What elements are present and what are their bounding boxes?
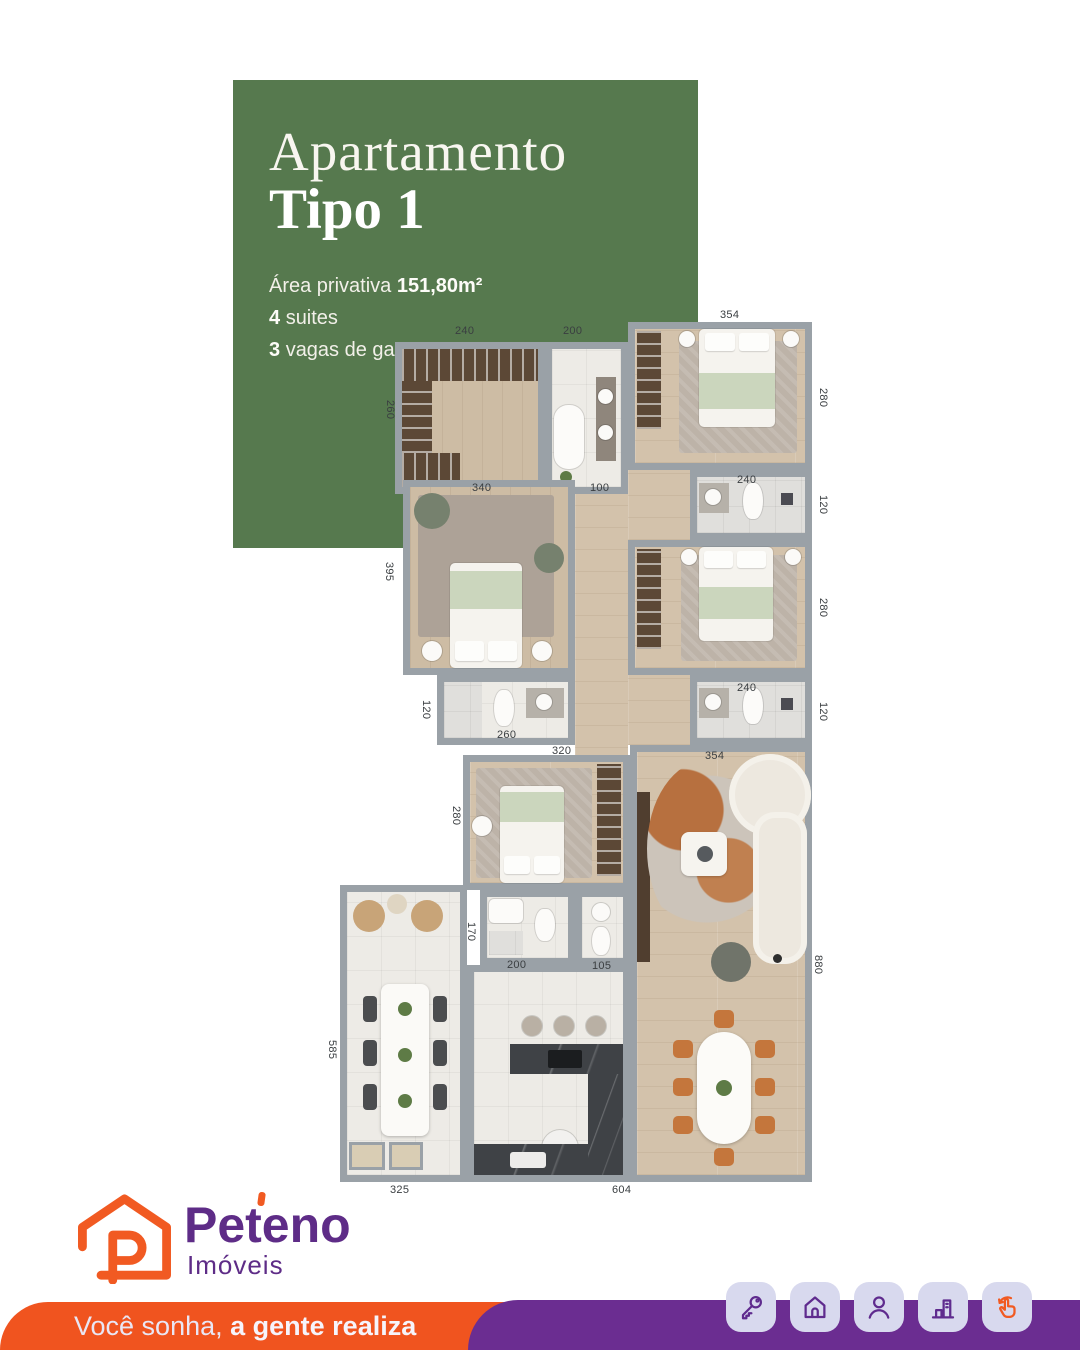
floor-lamp (781, 493, 793, 505)
dining-chair (673, 1040, 693, 1058)
side-table (532, 641, 552, 661)
side-table (422, 641, 442, 661)
sink (598, 425, 613, 440)
sink (536, 694, 552, 710)
footer-tagline: Você sonha, a gente realiza (74, 1311, 416, 1342)
dim-label: 100 (590, 483, 609, 494)
room-suite-2 (628, 540, 812, 675)
room-kitchen (467, 965, 630, 1182)
dim-label: 260 (497, 730, 516, 741)
dim-label: 604 (612, 1185, 631, 1196)
nightstand (679, 331, 695, 347)
entry-hall (628, 470, 690, 540)
dining-chair (755, 1078, 775, 1096)
toilet (535, 909, 555, 941)
bed (699, 329, 775, 427)
plant (716, 1080, 732, 1096)
dim-label: 880 (812, 955, 823, 974)
side-table (387, 894, 407, 914)
key-icon[interactable] (726, 1282, 776, 1332)
bed (450, 563, 522, 668)
toilet (592, 927, 610, 955)
spec-area: Área privativa 151,80m² (269, 270, 567, 302)
pillow (705, 333, 735, 351)
pillow (504, 856, 530, 874)
chair (534, 543, 564, 573)
pillow (739, 333, 769, 351)
room-lavabo (575, 890, 630, 965)
dim-label: 280 (817, 388, 828, 407)
suites-number: 4 (269, 307, 280, 329)
room-living-dining (630, 745, 812, 1182)
shower (444, 682, 482, 738)
bed (699, 547, 773, 641)
chair (363, 996, 377, 1022)
pillow (488, 641, 517, 661)
grill (389, 1142, 423, 1170)
dim-label: 120 (420, 700, 431, 719)
blanket (450, 571, 522, 609)
bathtub (554, 405, 584, 469)
armchair (414, 493, 450, 529)
hallway (575, 480, 628, 770)
dim-label: 240 (737, 475, 756, 486)
toilet (743, 483, 763, 519)
bar-stool (554, 1016, 574, 1036)
tagline-bold: a gente realiza (230, 1311, 416, 1341)
footer-icon-buttons (726, 1282, 1032, 1332)
brand-subtitle: Imóveis (187, 1250, 284, 1281)
dim-label: 395 (383, 562, 394, 581)
room-bathroom-suite4 (480, 890, 575, 965)
nightstand (681, 549, 697, 565)
blanket (699, 587, 773, 619)
dim-label: 240 (737, 683, 756, 694)
vanity-sink (489, 899, 523, 923)
dining-chair (714, 1010, 734, 1028)
floor-lamp (781, 698, 793, 710)
toilet (494, 690, 514, 726)
room-balcony (340, 885, 467, 1182)
brand-logo: Peteno Imóveis (72, 1192, 492, 1287)
plant (398, 1094, 412, 1108)
dim-label: 585 (326, 1040, 337, 1059)
room-walkin-closet (395, 342, 545, 494)
sink (705, 694, 721, 710)
card-title-line2: Tipo 1 (269, 180, 567, 240)
armchair (711, 942, 751, 982)
dim-label: 280 (450, 806, 461, 825)
cooktop (548, 1050, 582, 1068)
home-icon[interactable] (790, 1282, 840, 1332)
area-value: 151,80m² (397, 275, 483, 297)
shower (489, 931, 523, 955)
chair (433, 996, 447, 1022)
dining-chair (755, 1040, 775, 1058)
dining-chair (755, 1116, 775, 1134)
room-suite-4 (463, 755, 630, 890)
wardrobe (402, 381, 432, 453)
wardrobe (402, 349, 538, 381)
chair (363, 1084, 377, 1110)
dim-label: 354 (720, 310, 739, 321)
pillow (455, 641, 484, 661)
garage-number: 3 (269, 339, 280, 361)
tv-sideboard (637, 792, 650, 962)
dim-label: 120 (817, 495, 828, 514)
nightstand (783, 331, 799, 347)
sink (705, 489, 721, 505)
kitchen-sink (510, 1152, 546, 1168)
house-logo-icon (72, 1192, 177, 1284)
dim-label: 170 (465, 922, 476, 941)
plant (398, 1048, 412, 1062)
plant (398, 1002, 412, 1016)
floor-lamp (773, 954, 782, 963)
bed (500, 786, 564, 883)
area-label: Área privativa (269, 275, 391, 297)
sofa (753, 812, 807, 964)
side-table (472, 816, 492, 836)
sink (592, 903, 610, 921)
hallway (628, 675, 690, 745)
closet-shelves (637, 331, 661, 429)
dim-label: 120 (817, 702, 828, 721)
dim-label: 240 (455, 326, 474, 337)
grill (349, 1142, 385, 1170)
dining-chair (714, 1148, 734, 1166)
rattan-chair (353, 900, 385, 932)
kitchen-counter (588, 1074, 623, 1175)
dining-chair (673, 1078, 693, 1096)
pillow (704, 551, 733, 568)
dim-label: 260 (384, 400, 395, 419)
user-icon[interactable] (854, 1282, 904, 1332)
dim-label: 320 (552, 746, 571, 757)
floor-plan: 240 200 354 260 280 340 100 240 120 395 … (320, 305, 835, 1200)
dim-label: 200 (563, 326, 582, 337)
blanket (699, 373, 775, 409)
tagline-regular: Você sonha, (74, 1311, 223, 1341)
chair (433, 1040, 447, 1066)
chair (363, 1040, 377, 1066)
closet-shelves (597, 764, 621, 876)
brand-name: Peteno (184, 1196, 351, 1254)
pillow (534, 856, 560, 874)
blanket (500, 792, 564, 822)
dim-label: 280 (817, 598, 828, 617)
room-suite-3 (403, 480, 575, 675)
rattan-chair (411, 900, 443, 932)
dim-label: 200 (507, 960, 526, 971)
swipe-hand-icon[interactable] (982, 1282, 1032, 1332)
nightstand (785, 549, 801, 565)
chair (433, 1084, 447, 1110)
closet-shelves (637, 549, 661, 649)
building-chart-icon[interactable] (918, 1282, 968, 1332)
room-bathroom-master (545, 342, 628, 494)
pillow (737, 551, 766, 568)
sink (598, 389, 613, 404)
dining-chair (673, 1116, 693, 1134)
bar-stool (586, 1016, 606, 1036)
dim-label: 340 (472, 483, 491, 494)
room-suite-1 (628, 322, 812, 470)
card-title-line1: Apartamento (269, 124, 567, 180)
bar-stool (522, 1016, 542, 1036)
dim-label: 105 (592, 961, 611, 972)
tray (697, 846, 713, 862)
dim-label: 354 (705, 751, 724, 762)
